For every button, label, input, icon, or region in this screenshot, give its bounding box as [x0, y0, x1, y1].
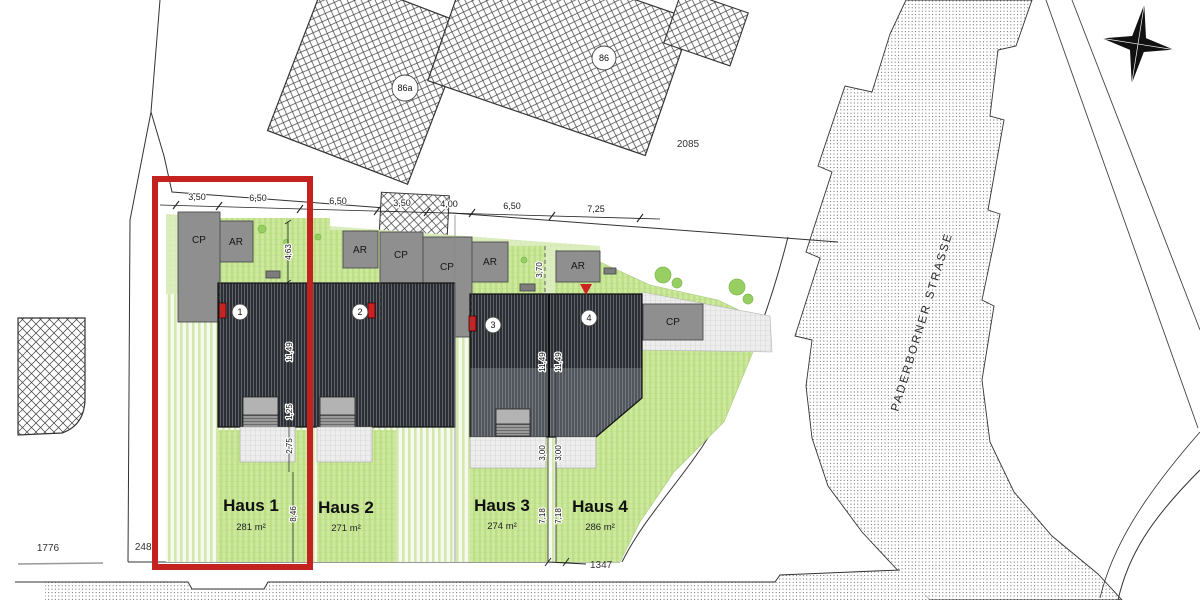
bin-box-1	[266, 271, 280, 278]
dim-front4: 3,70	[535, 262, 544, 278]
terrace-haus3	[470, 437, 546, 468]
dim-terrace1a: 1,25	[285, 404, 294, 420]
carport-haus1	[178, 212, 220, 322]
haus4-area: 286 m²	[585, 522, 615, 533]
dim-top-4: 3,50	[393, 198, 411, 208]
zone-label-cp4: CP	[666, 317, 680, 328]
zone-label-ar1: AR	[229, 237, 243, 248]
dormer-haus2-louver	[320, 415, 355, 428]
zone-label-cp2: CP	[394, 250, 408, 261]
garden-haus3	[470, 468, 548, 562]
parcel-1347: 1347	[590, 560, 613, 571]
haus2-area: 271 m²	[331, 523, 361, 534]
parcel-label-86a: 86a	[397, 83, 412, 93]
zone-label-cp3: CP	[440, 262, 454, 273]
haus3-area: 274 m²	[487, 521, 517, 532]
house-no-2: 2	[357, 307, 362, 317]
dim-roof12: 11,49	[285, 342, 294, 362]
parcel-1776: 1776	[37, 543, 60, 554]
dim-terrace1b: 2,75	[285, 438, 294, 454]
haus1-label: Haus 1	[223, 496, 279, 515]
dim-garden1: 8,46	[289, 506, 298, 522]
house-no-4: 4	[586, 313, 591, 323]
house-no-3: 3	[490, 320, 495, 330]
dim-top-6: 6,50	[503, 201, 521, 211]
site-plan: PADERBORNER STRASSE 86a 86	[0, 0, 1200, 600]
dim-top-7: 7,25	[587, 204, 605, 214]
bin-box-3	[604, 268, 616, 274]
haus1-area: 281 m²	[236, 522, 266, 533]
bin-box-2	[520, 284, 535, 291]
dormer-haus1-louver	[243, 415, 278, 428]
haus3-label: Haus 3	[474, 496, 530, 515]
existing-building-west	[18, 318, 85, 435]
entrance-marker-haus2	[368, 303, 375, 318]
zone-label-ar4: AR	[571, 261, 585, 272]
dim-garden3: 7,18	[538, 508, 547, 524]
haus4-label: Haus 4	[572, 497, 628, 516]
dim-top-1: 3,50	[188, 192, 206, 202]
dim-terrace4: 3,00	[554, 445, 563, 461]
site-plan-svg: PADERBORNER STRASSE 86a 86	[0, 0, 1200, 600]
dim-top-2: 6,50	[249, 193, 267, 203]
dim-terrace3: 3,00	[538, 445, 547, 461]
parcel-label-86: 86	[599, 53, 609, 63]
terrace-haus2	[317, 427, 372, 462]
dim-top-3: 6,50	[329, 196, 347, 206]
parcel-2085: 2085	[677, 139, 700, 150]
dim-roof34-left: 11,49	[538, 352, 547, 372]
dormer-haus3-louver	[496, 424, 530, 436]
zone-label-cp1: CP	[192, 235, 206, 246]
entrance-marker-haus3	[469, 316, 476, 331]
zone-label-ar2: AR	[353, 245, 367, 256]
haus2-label: Haus 2	[318, 498, 374, 517]
dim-roof34-right: 11,49	[554, 352, 563, 372]
dim-garden4: 7,18	[554, 508, 563, 524]
house-no-1: 1	[237, 307, 242, 317]
boundary-line-south-gray	[18, 563, 103, 564]
zone-label-ar3: AR	[483, 257, 497, 268]
dim-front1: 4,63	[284, 244, 293, 260]
dim-top-5: 4,00	[440, 199, 458, 209]
